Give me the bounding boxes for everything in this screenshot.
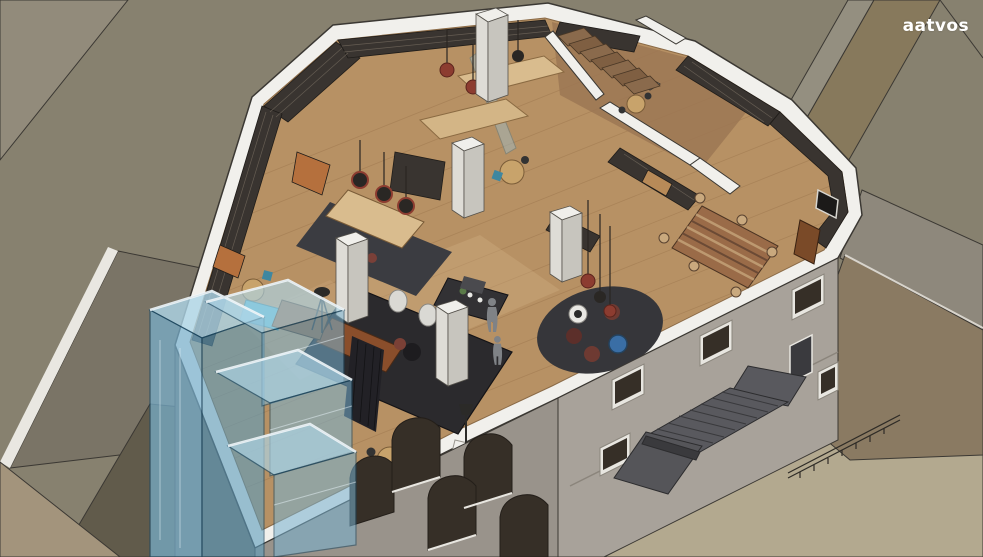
chair [767, 247, 777, 257]
aatvos-watermark: aatvos [903, 16, 969, 36]
glass-elevator-tower [150, 280, 356, 557]
round-table [500, 160, 524, 184]
bowl-pendant [398, 198, 414, 214]
library-cutaway-render [0, 0, 983, 557]
armchair [419, 304, 437, 326]
shaft-side [202, 317, 264, 557]
pendant-lamp-dark [594, 291, 606, 303]
bowl-pendant [352, 172, 368, 188]
chair-dark [619, 107, 626, 114]
pillar [476, 8, 508, 102]
side-table-top [574, 310, 582, 318]
pouf-blue [609, 335, 627, 353]
chair [659, 233, 669, 243]
pillar [550, 206, 582, 282]
pillar [452, 137, 484, 218]
pendant-lamp-dark [512, 50, 524, 62]
chair-dark [367, 448, 376, 457]
chair [695, 193, 705, 203]
chair-dark [521, 156, 529, 164]
pillar [436, 300, 468, 386]
bowl-pendant [376, 186, 392, 202]
chair [689, 261, 699, 271]
pouf [584, 346, 600, 362]
shaft-front [150, 310, 202, 557]
cup [468, 293, 473, 298]
arched-window [500, 495, 548, 557]
chair-dark [645, 93, 652, 100]
pendant-lamp [604, 305, 616, 317]
pendant-lamp [581, 274, 595, 288]
pendant-lamp [440, 63, 454, 77]
chair [731, 287, 741, 297]
round-table [627, 95, 645, 113]
pouf [566, 328, 582, 344]
stool [367, 253, 377, 263]
stage-stool [394, 338, 406, 350]
armchair [389, 290, 407, 312]
cup [478, 298, 483, 303]
chair [737, 215, 747, 225]
